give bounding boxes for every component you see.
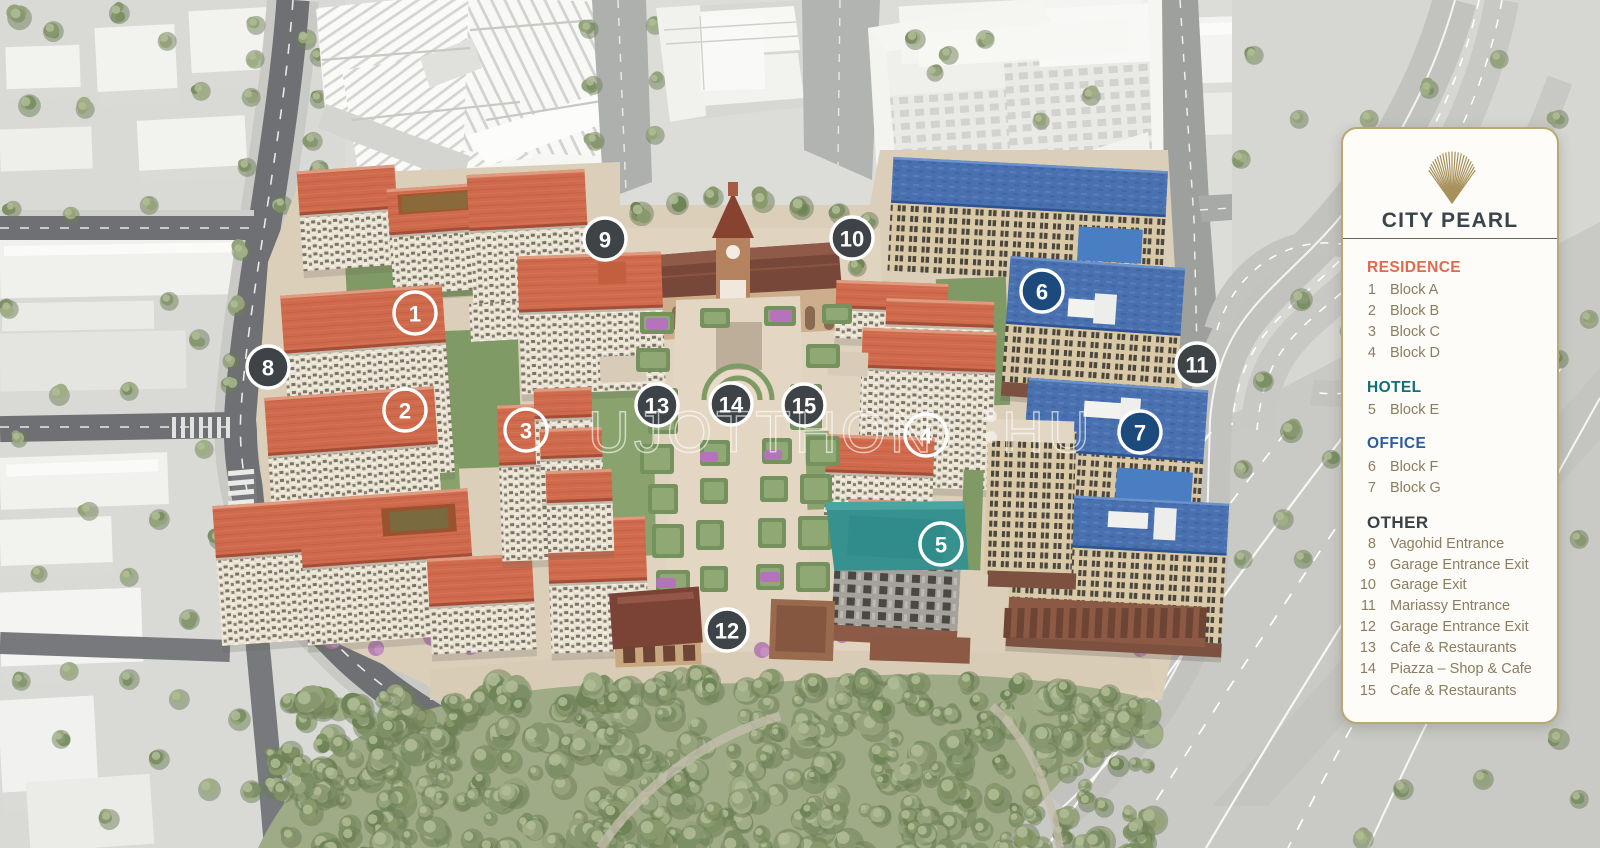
svg-text:12: 12 (715, 619, 739, 644)
svg-text:2: 2 (399, 399, 411, 424)
svg-text:9: 9 (599, 228, 611, 253)
svg-text:8: 8 (262, 356, 274, 381)
svg-text:7: 7 (1134, 421, 1146, 446)
svg-text:HU: HU (1002, 400, 1094, 465)
svg-text:1: 1 (409, 302, 421, 327)
svg-text:6: 6 (1036, 280, 1048, 305)
svg-text:UJOTTHON: UJOTTHON (588, 400, 936, 465)
svg-text:5: 5 (935, 533, 947, 558)
svg-text:10: 10 (840, 227, 864, 252)
svg-text:3: 3 (520, 419, 532, 444)
svg-text:11: 11 (1185, 353, 1208, 378)
